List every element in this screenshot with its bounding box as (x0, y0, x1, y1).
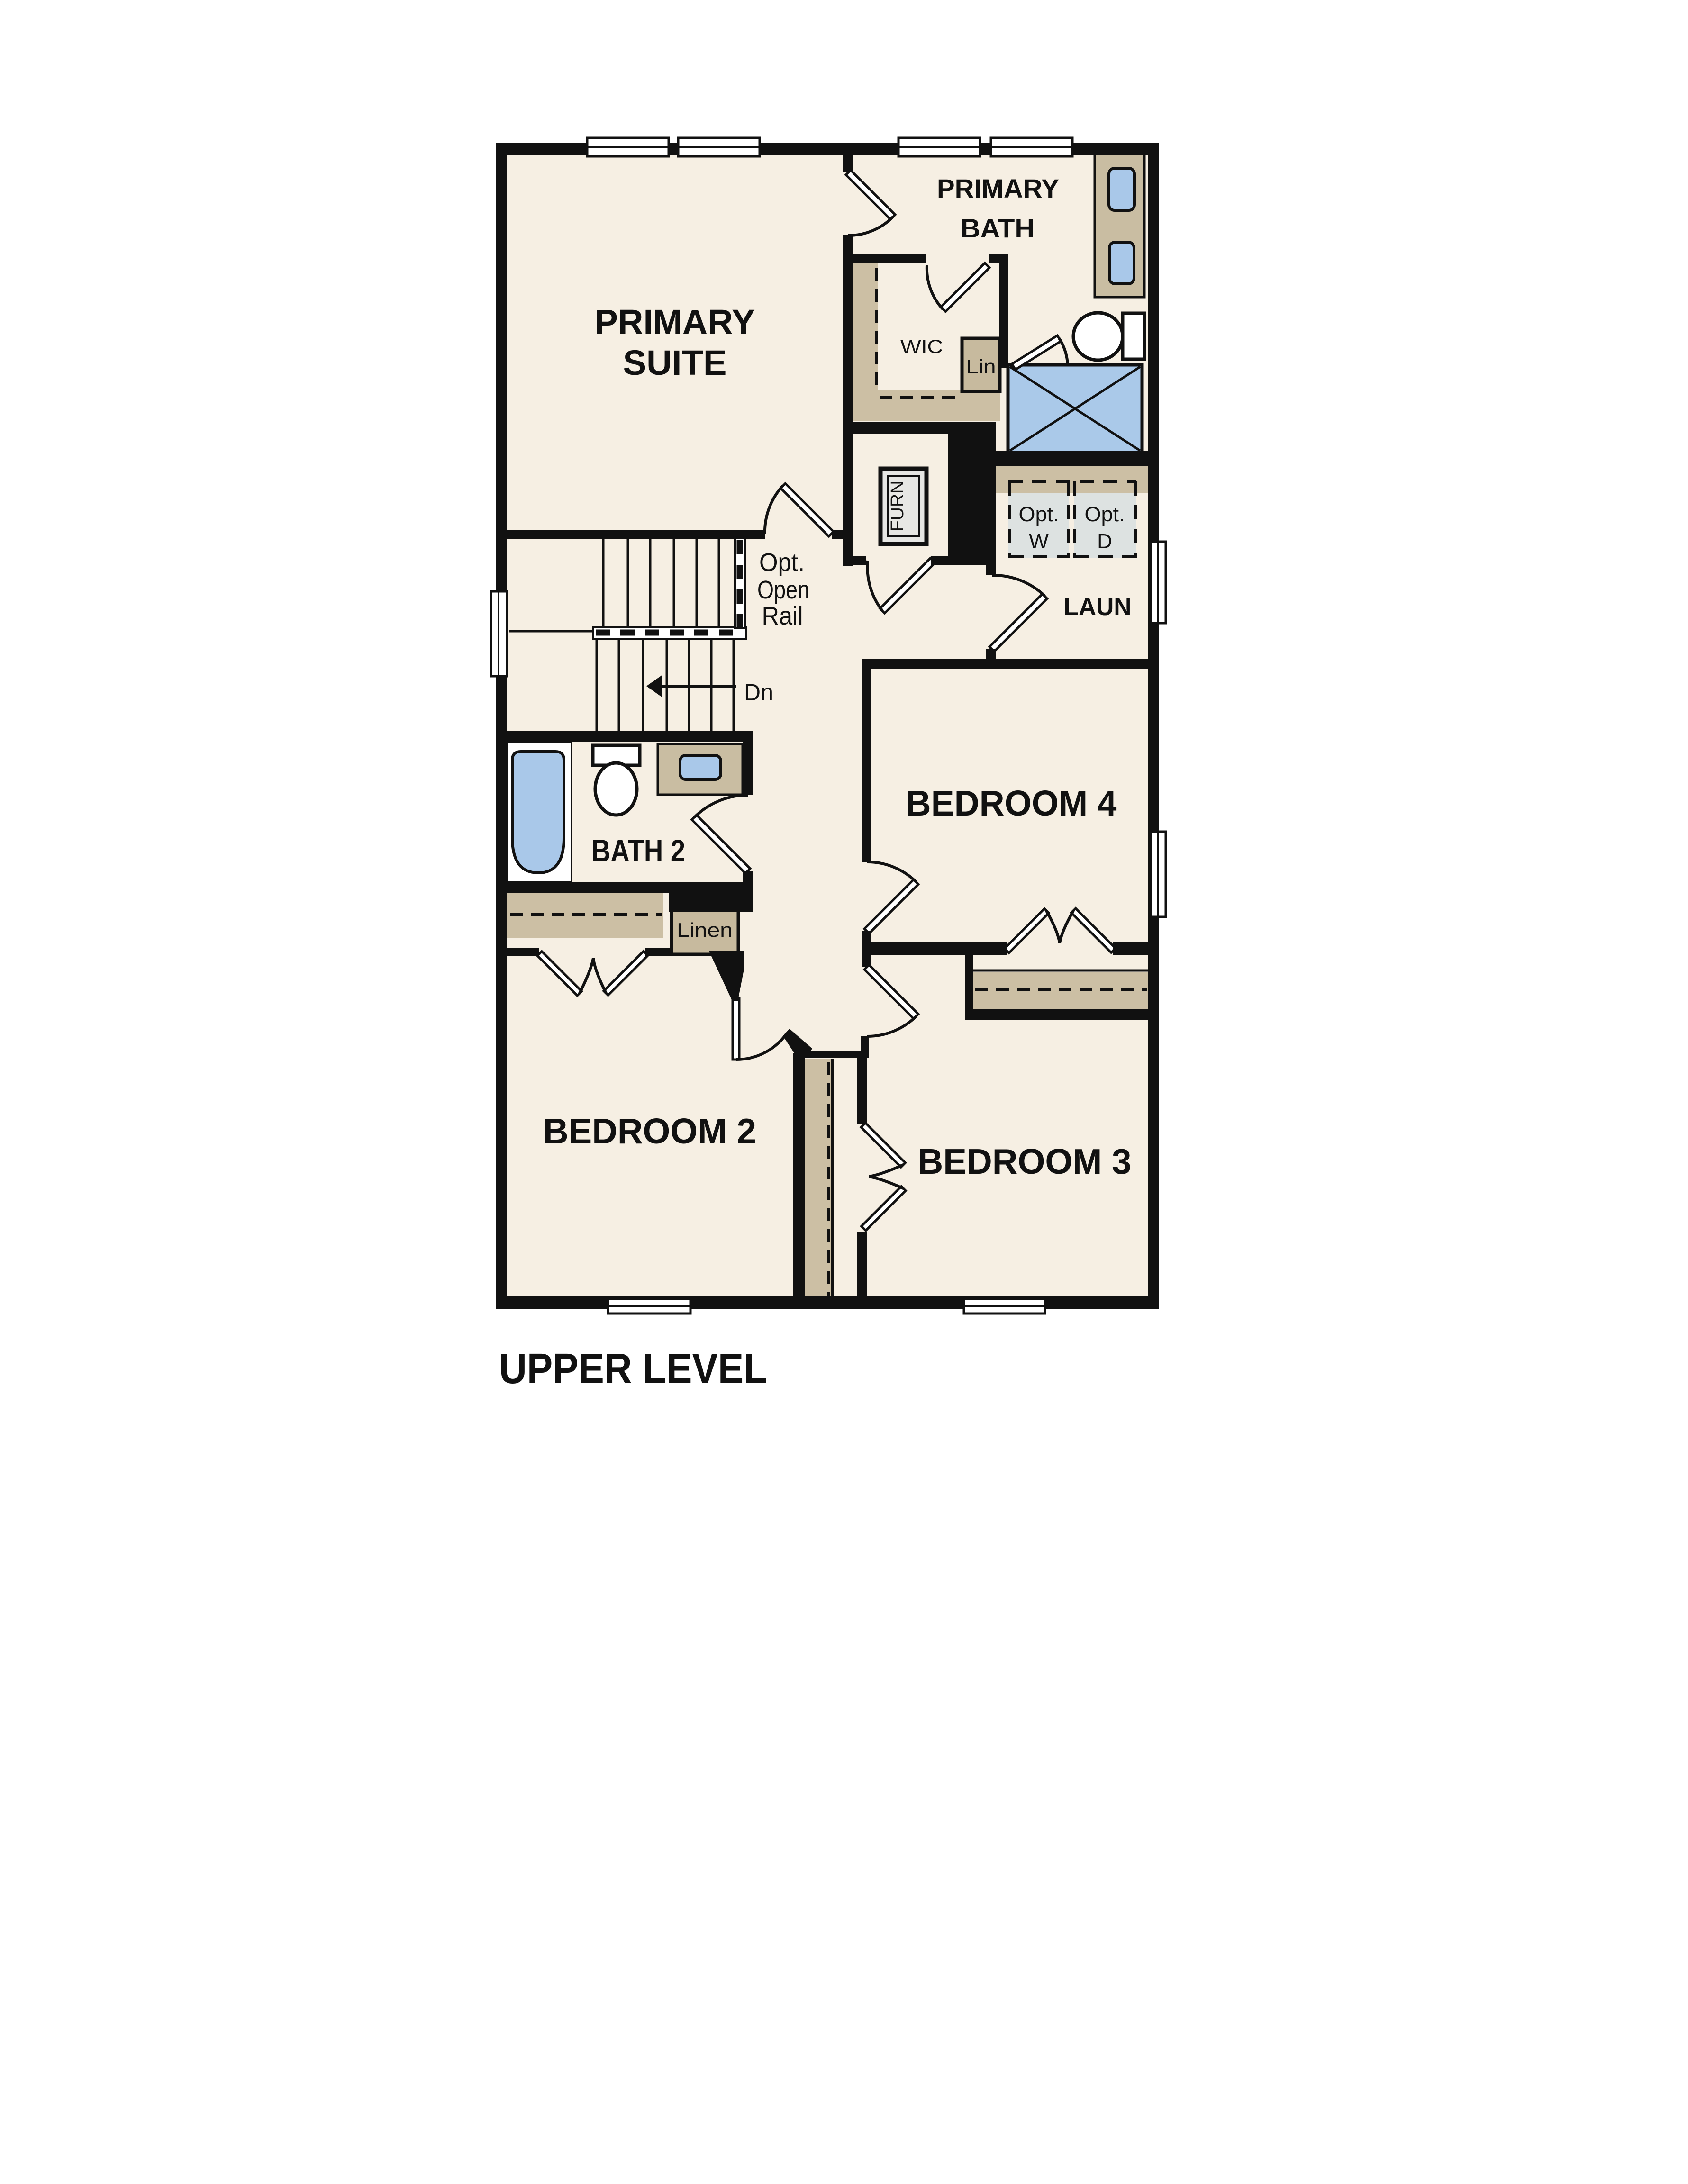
svg-text:FURN: FURN (888, 480, 908, 532)
svg-text:BEDROOM 2: BEDROOM 2 (543, 1111, 756, 1151)
svg-text:LAUN: LAUN (1064, 593, 1132, 620)
svg-text:BEDROOM 3: BEDROOM 3 (918, 1142, 1132, 1181)
svg-text:Opt.: Opt. (1019, 503, 1059, 526)
svg-text:Opt.: Opt. (759, 548, 805, 577)
svg-text:Lin: Lin (966, 356, 996, 377)
svg-text:PRIMARY: PRIMARY (937, 173, 1059, 203)
svg-text:W: W (1029, 530, 1049, 553)
svg-text:Rail: Rail (762, 602, 803, 630)
svg-text:UPPER LEVEL: UPPER LEVEL (499, 1345, 767, 1393)
svg-text:Linen: Linen (677, 919, 733, 941)
svg-text:WIC: WIC (900, 336, 943, 357)
svg-text:SUITE: SUITE (623, 343, 727, 382)
svg-text:PRIMARY: PRIMARY (595, 302, 755, 342)
svg-text:BATH: BATH (961, 213, 1035, 243)
svg-text:Opt.: Opt. (1085, 503, 1125, 526)
svg-text:BATH 2: BATH 2 (591, 833, 685, 868)
svg-text:D: D (1097, 530, 1112, 553)
svg-text:Dn: Dn (744, 679, 773, 706)
svg-text:Open: Open (757, 576, 809, 604)
svg-text:BEDROOM 4: BEDROOM 4 (906, 783, 1117, 823)
